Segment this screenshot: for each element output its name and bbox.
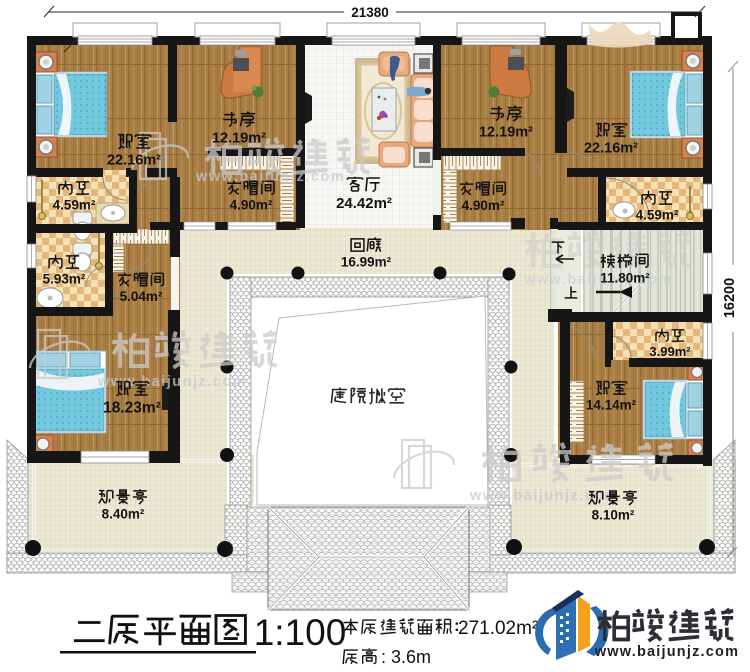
- svg-text:: 3.6m: : 3.6m: [381, 647, 431, 667]
- svg-text:21380: 21380: [351, 5, 389, 20]
- svg-text:1:100: 1:100: [254, 612, 347, 653]
- svg-text:12.19m²: 12.19m²: [212, 131, 266, 147]
- svg-text:16.99m²: 16.99m²: [341, 255, 392, 270]
- svg-text:8.10m²: 8.10m²: [592, 508, 635, 523]
- svg-text:18.23m²: 18.23m²: [103, 400, 161, 417]
- svg-text:5.93m²: 5.93m²: [43, 272, 86, 287]
- svg-text:12.19m²: 12.19m²: [479, 125, 533, 141]
- svg-text:www.baijunjz.com: www.baijunjz.com: [195, 169, 345, 185]
- svg-text:22.16m²: 22.16m²: [107, 153, 161, 169]
- svg-text:8.40m²: 8.40m²: [102, 507, 145, 522]
- svg-text:4.90m²: 4.90m²: [462, 198, 505, 213]
- svg-text:14.14m²: 14.14m²: [586, 398, 637, 413]
- svg-text:4.90m²: 4.90m²: [230, 198, 273, 213]
- svg-text:271.02m²: 271.02m²: [458, 618, 538, 639]
- svg-text:3.99m²: 3.99m²: [649, 344, 691, 359]
- svg-text:11.80m²: 11.80m²: [600, 271, 650, 286]
- svg-text:www.baijunjz.com: www.baijunjz.com: [523, 272, 673, 288]
- svg-text:4.59m²: 4.59m²: [636, 208, 679, 223]
- svg-text:5.04m²: 5.04m²: [120, 289, 163, 304]
- svg-text:24.42m²: 24.42m²: [336, 195, 392, 212]
- svg-text:4.59m²: 4.59m²: [53, 198, 96, 213]
- svg-text:www.baijunjz.com: www.baijunjz.com: [594, 644, 739, 660]
- svg-text:16200: 16200: [722, 278, 738, 318]
- svg-text:22.16m²: 22.16m²: [584, 141, 638, 157]
